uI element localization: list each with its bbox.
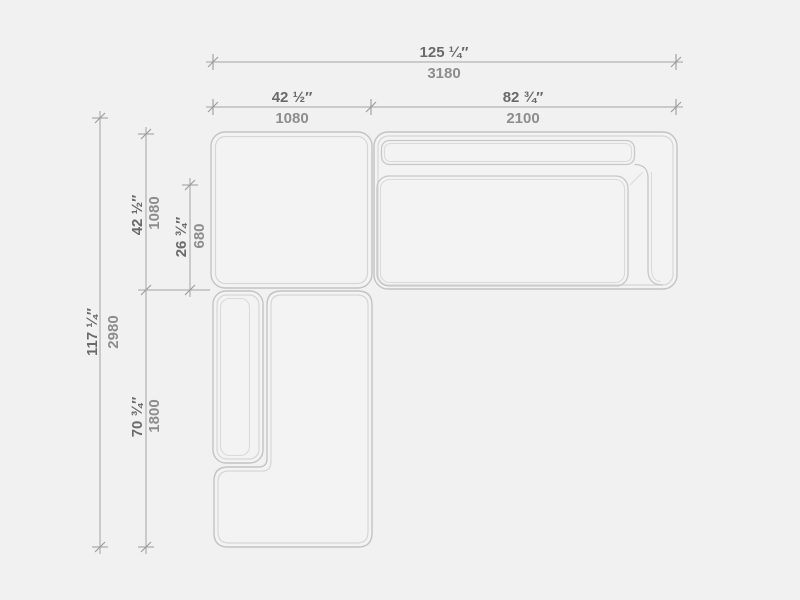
dim-upper-depth-mm: 1080 — [146, 196, 163, 229]
dim-sofa-width-inches: 82 ¾″ — [503, 89, 544, 106]
sectional-sofa-dimension-drawing: 125 ¼″ 3180 42 ½″ 1080 82 ¾″ 2100 117 ¼″… — [0, 0, 800, 600]
dim-seat-depth-inches: 26 ¾″ — [173, 217, 190, 258]
sofa-module-right-armrest — [374, 132, 677, 289]
dim-overall-depth-inches: 117 ¼″ — [84, 308, 101, 356]
dim-seat-depth-mm: 680 — [191, 223, 208, 248]
dim-overall-depth-mm: 2980 — [105, 315, 122, 348]
dim-ottoman-width-inches: 42 ½″ — [272, 89, 313, 106]
chaise-module-left-armrest — [213, 291, 372, 547]
dim-sofa-width-mm: 2100 — [506, 110, 539, 127]
dim-lower-depth-inches: 70 ¾″ — [129, 397, 146, 438]
canvas-background — [0, 0, 800, 600]
dim-overall-width-mm: 3180 — [427, 65, 460, 82]
dim-ottoman-width-mm: 1080 — [275, 110, 308, 127]
corner-ottoman-module — [211, 132, 372, 288]
dim-overall-width-inches: 125 ¼″ — [420, 44, 469, 61]
dim-upper-depth-inches: 42 ½″ — [129, 195, 146, 236]
dim-lower-depth-mm: 1800 — [146, 399, 163, 432]
